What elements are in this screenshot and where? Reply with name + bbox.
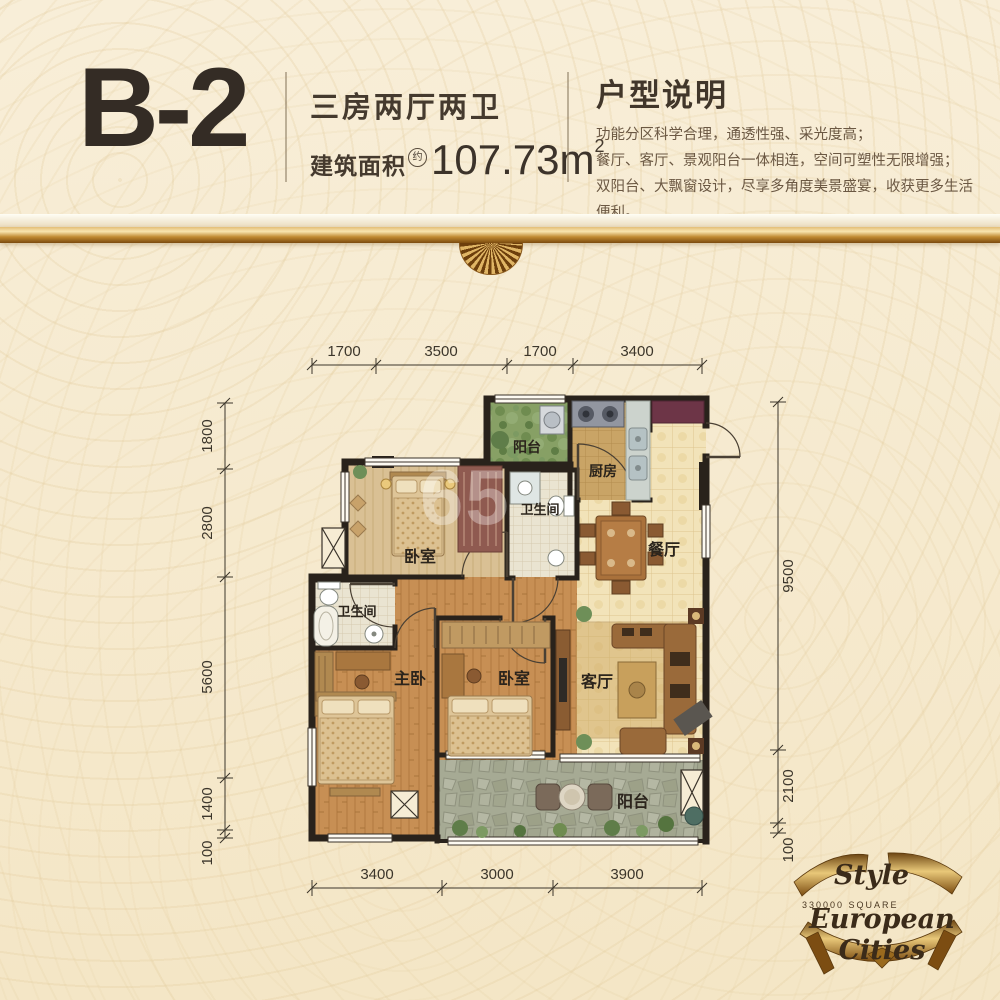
gold-band xyxy=(0,227,1000,243)
dim-top-1: 1700 xyxy=(327,343,360,360)
dim-left-4: 1400 xyxy=(199,787,216,820)
area-row: 建筑面积约107.73m2 xyxy=(310,136,604,184)
dim-top-4: 3400 xyxy=(620,343,653,360)
description-block: 功能分区科学合理，通透性强、采光度高； 餐厅、客厅、景观阳台一体相连，空间可塑性… xyxy=(596,122,976,226)
dim-left-3: 5600 xyxy=(199,660,216,693)
approx-badge: 约 xyxy=(408,148,427,167)
site-watermark: 65 xyxy=(420,452,511,543)
dim-bottom-1: 3400 xyxy=(360,866,393,883)
description-line-2: 餐厅、客厅、景观阳台一体相连，空间可塑性无限增强； xyxy=(596,148,976,174)
layout-type: 三房两厅两卫 xyxy=(310,84,502,126)
description-title: 户型说明 xyxy=(596,70,728,115)
entry-door xyxy=(706,423,740,457)
header-divider-2 xyxy=(567,72,569,182)
dim-right-2: 2100 xyxy=(780,769,797,802)
dim-right-1: 9500 xyxy=(780,559,797,592)
wall-pier-right xyxy=(699,462,708,510)
label-bedroom-top: 卧室 xyxy=(404,547,436,566)
label-balcony-top: 阳台 xyxy=(513,439,541,455)
area-value: 107.73m xyxy=(431,136,594,183)
area-label: 建筑面积 xyxy=(310,153,406,179)
label-dining: 餐厅 xyxy=(647,540,680,559)
label-living: 客厅 xyxy=(581,672,613,691)
dim-top-2: 3500 xyxy=(424,343,457,360)
header-divider xyxy=(285,72,287,182)
label-bath-lower: 卫生间 xyxy=(337,604,376,619)
dim-left-1: 1800 xyxy=(199,419,216,452)
dim-left-2: 2800 xyxy=(199,506,216,539)
logo-style-text: Style xyxy=(834,860,909,891)
project-logo: Style 330000 SQUARE European Cities xyxy=(772,842,992,992)
dim-bottom-2: 3000 xyxy=(480,866,513,883)
label-bath-upper: 卫生间 xyxy=(520,502,559,517)
label-kitchen: 厨房 xyxy=(589,463,617,479)
dim-top-3: 1700 xyxy=(523,343,556,360)
description-line-1: 功能分区科学合理，通透性强、采光度高； xyxy=(596,122,976,148)
label-balcony-bottom: 阳台 xyxy=(617,792,649,811)
label-master: 主卧 xyxy=(394,669,426,688)
unit-code: B-2 xyxy=(78,52,246,164)
dim-left-5: 100 xyxy=(199,840,216,865)
living-furniture xyxy=(556,606,713,754)
label-bedroom-mid: 卧室 xyxy=(498,669,530,688)
logo-name-text: European Cities xyxy=(772,904,992,966)
dim-bottom-3: 3900 xyxy=(610,866,643,883)
fan-medallion-ornament xyxy=(459,243,523,275)
band-highlight xyxy=(0,214,1000,227)
floorplan-page: { "header": { "unit": "B-2", "type": "三房… xyxy=(0,0,1000,1000)
